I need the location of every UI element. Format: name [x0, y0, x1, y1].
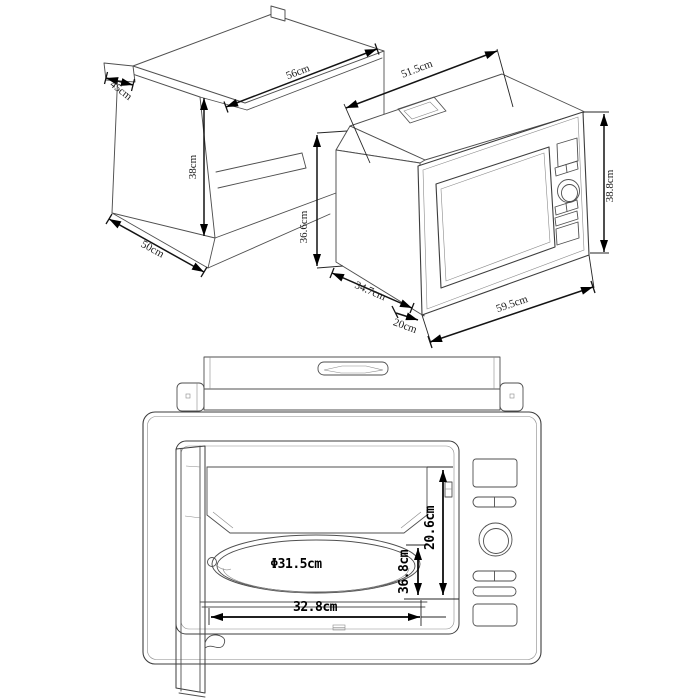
- turntable-diameter-label: Φ31.5cm: [270, 557, 322, 572]
- diagram-page: 45cm 56cm 38cm 50cm: [0, 0, 700, 700]
- microwave-iso-drawing: 51.5cm 36.6cm 34.7cm 20cm 59.5cm 38.8cm: [298, 49, 616, 348]
- microwave-frame-width-label: 59.5cm: [495, 293, 530, 315]
- left-mount-bracket: [177, 383, 204, 411]
- cabinet-height-label: 38cm: [187, 154, 199, 179]
- front-view-drawing: Φ31.5cm 32.8cm 36.8cm 20.6cm: [143, 357, 541, 697]
- back-housing: [177, 357, 523, 411]
- microwave-frame-height-label: 38.8cm: [604, 169, 616, 202]
- microwave-body-height-label: 36.6cm: [298, 210, 310, 243]
- interior-width-label: 32.8cm: [293, 600, 338, 615]
- right-mount-bracket: [500, 383, 523, 411]
- interior-depth-label: 36.8cm: [397, 549, 412, 594]
- interior-height-label: 20.6cm: [423, 505, 438, 550]
- diagram-canvas: 45cm 56cm 38cm 50cm: [0, 0, 700, 700]
